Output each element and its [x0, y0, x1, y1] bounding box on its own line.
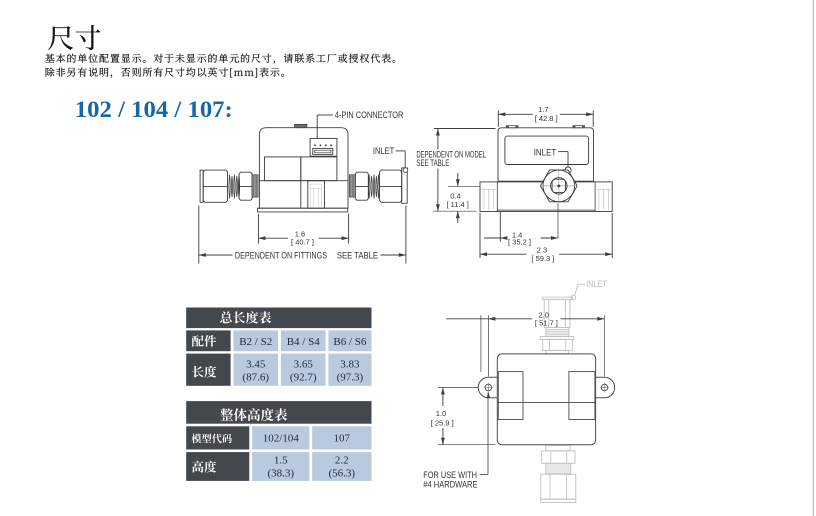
- svg-text:#4 HARDWARE: #4 HARDWARE: [423, 480, 477, 490]
- svg-text:[ 25.9 ]: [ 25.9 ]: [431, 418, 454, 427]
- svg-text:3.83: 3.83: [340, 358, 360, 370]
- svg-text:INLET: INLET: [373, 146, 395, 156]
- svg-text:[ 59.3 ]: [ 59.3 ]: [531, 254, 554, 263]
- svg-text:1.0: 1.0: [436, 409, 446, 418]
- svg-text:(87.6): (87.6): [242, 372, 269, 384]
- svg-text:3.65: 3.65: [294, 358, 314, 370]
- svg-text:(56.3): (56.3): [329, 468, 356, 480]
- svg-text:B6 / S6: B6 / S6: [333, 336, 367, 348]
- svg-text:B4 / S4: B4 / S4: [287, 336, 321, 348]
- svg-text:1.7: 1.7: [538, 105, 548, 114]
- svg-text:[ 42.8 ]: [ 42.8 ]: [535, 114, 558, 123]
- svg-text:DEPENDENT ON FITTINGS: DEPENDENT ON FITTINGS: [235, 250, 327, 260]
- svg-text:[ 11.4 ]: [ 11.4 ]: [447, 200, 469, 209]
- svg-text:102 / 104 / 107:: 102 / 104 / 107:: [75, 97, 233, 122]
- svg-text:102/104: 102/104: [263, 433, 300, 445]
- svg-text:[ 51.7 ]: [ 51.7 ]: [535, 319, 558, 328]
- svg-text:INLET: INLET: [586, 279, 607, 289]
- svg-text:FOR USE WITH: FOR USE WITH: [423, 470, 477, 480]
- svg-text:(38.3): (38.3): [268, 468, 295, 480]
- svg-text:B2 / S2: B2 / S2: [239, 336, 272, 348]
- svg-text:2.2: 2.2: [335, 454, 349, 466]
- svg-text:4-PIN CONNECTOR: 4-PIN CONNECTOR: [335, 110, 404, 120]
- svg-text:SEE TABLE: SEE TABLE: [337, 250, 378, 260]
- svg-text:(92.7): (92.7): [290, 372, 317, 384]
- svg-text:107: 107: [334, 433, 351, 445]
- svg-text:(97.3): (97.3): [337, 372, 364, 384]
- svg-text:SEE TABLE: SEE TABLE: [416, 158, 449, 168]
- svg-text:[ 35.2 ]: [ 35.2 ]: [508, 238, 531, 247]
- svg-text:1.5: 1.5: [274, 454, 288, 466]
- svg-text:INLET: INLET: [534, 148, 557, 158]
- svg-text:3.45: 3.45: [246, 358, 266, 370]
- svg-text:[ 40.7 ]: [ 40.7 ]: [291, 237, 314, 246]
